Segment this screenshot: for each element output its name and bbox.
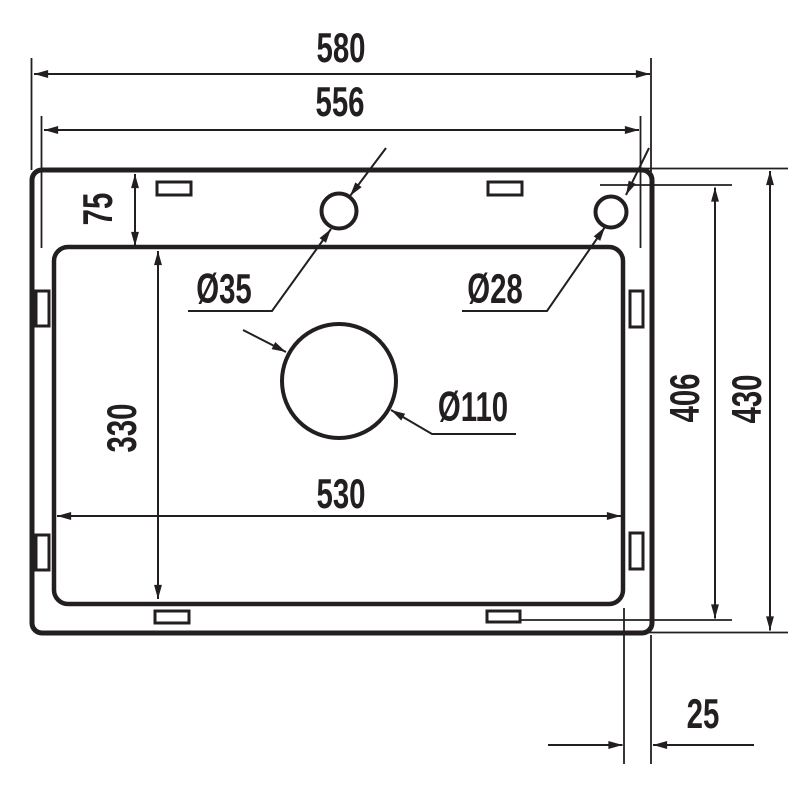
clip-top-right	[488, 182, 522, 195]
overall-height-label: 430	[723, 374, 771, 423]
rim-width-label: 556	[315, 78, 364, 126]
technical-drawing: 580 556 530 25 75 330 406 430 Ø35 Ø28 Ø1…	[0, 0, 800, 800]
accessory-hole-circle	[596, 197, 627, 228]
deck-depth-label: 75	[74, 193, 122, 226]
tap-hole-circle	[322, 194, 357, 229]
edge-offset-label: 25	[687, 690, 720, 738]
bowl-width-label: 530	[316, 470, 365, 518]
overall-width-label: 580	[316, 24, 365, 72]
clip-right-top	[630, 291, 643, 327]
drain-hole-label: Ø110	[438, 383, 508, 431]
drain-hole-leader-upper	[243, 330, 286, 352]
tap-hole-label: Ø35	[196, 265, 252, 313]
sink-outer-outline	[32, 170, 652, 633]
clip-top-left	[157, 182, 191, 195]
drain-hole-circle	[282, 324, 396, 438]
bowl-depth-label: 330	[98, 403, 146, 452]
leader-lines	[188, 148, 649, 434]
clip-bottom-left	[155, 611, 189, 623]
inner-height-label: 406	[661, 373, 709, 422]
clip-bottom-right	[487, 611, 520, 622]
accessory-hole-label: Ø28	[467, 265, 523, 313]
clip-right-bottom	[630, 533, 643, 569]
clip-left-top	[36, 291, 49, 326]
clip-left-bottom	[36, 535, 49, 570]
